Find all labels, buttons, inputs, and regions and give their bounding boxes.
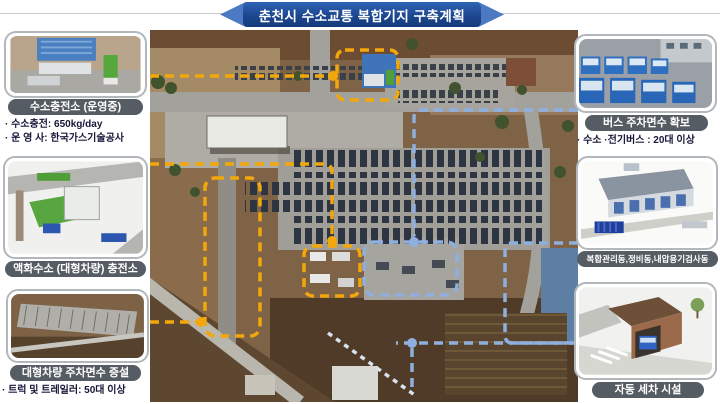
bus-parking-bullets: · 수소 ·전기버스 : 20대 이상 (577, 134, 718, 148)
caption-carwash: 자동 세차 시설 (592, 382, 704, 398)
aerial-map (150, 30, 578, 402)
title-banner: 춘천시 수소교통 복합기지 구축계획 (220, 2, 504, 27)
caption-liquid-hydrogen: 액화수소 (대형차량) 충전소 (5, 261, 146, 277)
carwash-site-building (332, 366, 378, 400)
truck-parking-bullets: · 트럭 및 트레일러: 50대 이상 (2, 384, 150, 398)
bullet: · 수소충전: 650kg/day (5, 118, 149, 132)
panel-management-building (576, 156, 718, 250)
bullet: · 수소 ·전기버스 : 20대 이상 (577, 134, 718, 148)
hydrogen-station-photo (9, 36, 142, 93)
caption-management-building: 복합관리동,정비동,내압용기검사동 (577, 251, 718, 267)
caption-hydrogen-station: 수소충전소 (운영중) (8, 99, 143, 115)
truck-parking-photo (11, 294, 144, 358)
carwash-render (579, 287, 712, 375)
caption-truck-parking: 대형차량 주차면수 증설 (10, 365, 141, 381)
hydrogen-station-bullets: · 수소충전: 650kg/day · 운 영 사: 한국가스기술공사 (5, 118, 149, 146)
panel-truck-parking (6, 289, 149, 363)
panel-bus-parking (574, 34, 717, 113)
bullet: · 트럭 및 트레일러: 50대 이상 (2, 384, 150, 398)
panel-liquid-hydrogen (3, 156, 148, 259)
management-building-render (581, 161, 713, 245)
banner-core: 춘천시 수소교통 복합기지 구축계획 (243, 2, 481, 27)
panel-hydrogen-station (4, 31, 147, 98)
bullet: · 운 영 사: 한국가스기술공사 (5, 132, 149, 146)
liquid-hydrogen-render (8, 161, 143, 254)
page-title: 춘천시 수소교통 복합기지 구축계획 (259, 5, 466, 25)
blue-trucks (595, 221, 624, 233)
bus-fleet-photo (579, 39, 712, 108)
caption-bus-parking: 버스 주차면수 확보 (585, 115, 708, 131)
panel-carwash (574, 282, 717, 380)
